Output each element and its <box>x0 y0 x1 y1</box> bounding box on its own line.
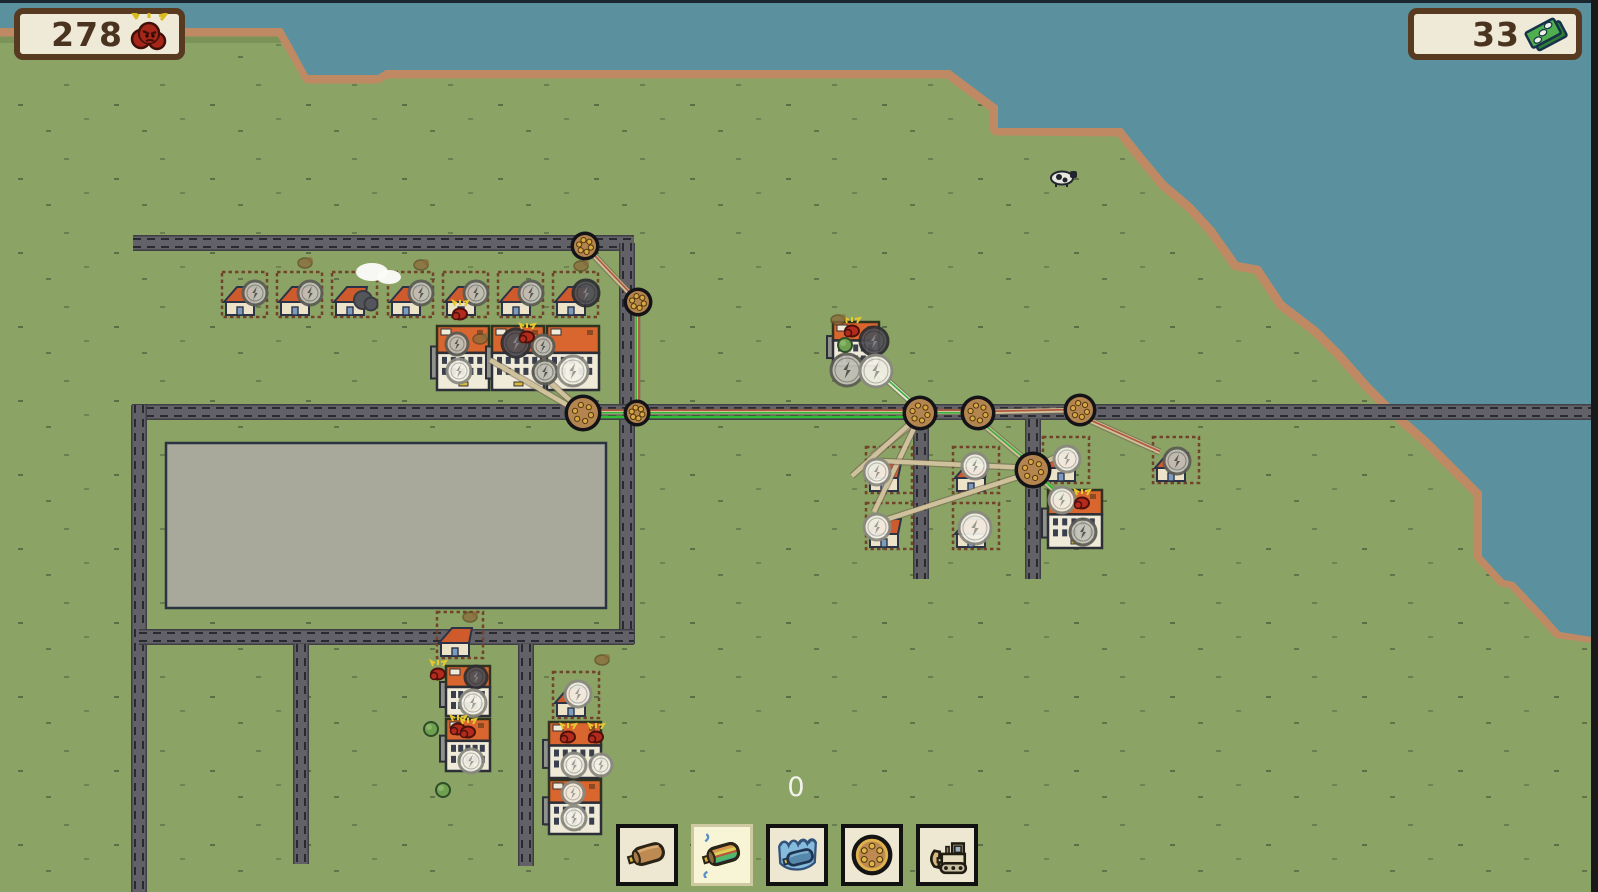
road <box>139 633 634 641</box>
splat <box>574 260 589 271</box>
splat <box>298 257 313 268</box>
road <box>1029 419 1037 579</box>
power-status-icon <box>532 335 554 357</box>
game-viewport: 278 33 0 <box>0 0 1598 892</box>
demand-counter-value: 278 <box>51 18 123 51</box>
power-status-icon <box>558 356 588 386</box>
power-status-icon <box>1054 446 1080 472</box>
underwater-cable-icon <box>774 832 820 878</box>
power-cable[interactable] <box>636 302 639 409</box>
power-status-icon <box>573 280 599 306</box>
utility-pole[interactable] <box>571 232 600 261</box>
power-status-icon <box>864 514 890 540</box>
power-status-icon <box>459 749 483 773</box>
concrete-pad[interactable] <box>166 443 606 608</box>
power-status-icon <box>409 281 433 305</box>
power-status-icon <box>533 360 557 384</box>
bulldozer-icon <box>924 832 970 878</box>
power-status-icon <box>460 690 486 716</box>
utility-pole[interactable] <box>565 395 602 432</box>
cable-icon <box>624 832 670 878</box>
power-status-icon <box>831 354 863 386</box>
utility-pole[interactable] <box>961 396 996 431</box>
map-edge-top <box>0 0 1598 3</box>
splat <box>831 314 846 325</box>
power-status-icon <box>465 666 487 688</box>
power-status-icon <box>562 753 586 777</box>
power-status-icon <box>959 512 991 544</box>
power-status-icon <box>447 359 471 383</box>
tool-multi-cable[interactable] <box>691 824 753 886</box>
power-status-icon <box>446 333 468 355</box>
utility-pole[interactable] <box>624 288 653 317</box>
demand-counter: 278 <box>14 8 185 60</box>
utility-pole[interactable] <box>903 396 938 431</box>
power-status-icon <box>1070 519 1096 545</box>
tool-underwater-cable[interactable] <box>766 824 828 886</box>
splat <box>595 654 610 665</box>
power-status-icon <box>565 681 591 707</box>
power-status-icon <box>562 782 584 804</box>
tree <box>436 783 450 797</box>
splat <box>463 611 478 622</box>
splat <box>414 259 429 270</box>
road <box>297 644 305 864</box>
utility-pole[interactable] <box>1015 452 1052 489</box>
placement-count: 0 <box>768 772 824 803</box>
money-counter: 33 <box>1408 8 1582 60</box>
road <box>917 419 925 579</box>
map-edge-right <box>1591 0 1598 892</box>
utility-pole[interactable] <box>624 400 651 427</box>
road <box>133 239 634 247</box>
power-status-icon <box>590 754 612 776</box>
power-status-icon <box>243 281 267 305</box>
tree <box>424 722 438 736</box>
tool-cable[interactable] <box>616 824 678 886</box>
power-status-icon <box>860 327 888 355</box>
game-map[interactable] <box>0 0 1598 892</box>
splat <box>473 333 488 344</box>
tree <box>838 338 852 352</box>
money-icon <box>1524 14 1570 54</box>
power-status-icon <box>519 281 543 305</box>
power-status-icon <box>1049 487 1075 513</box>
power-status-icon <box>298 281 322 305</box>
utility-pole[interactable] <box>1064 394 1097 427</box>
tool-pole[interactable] <box>841 824 903 886</box>
power-status-icon <box>860 355 892 387</box>
angry-creature-icon <box>127 13 173 55</box>
power-status-icon <box>962 453 988 479</box>
road <box>135 405 143 892</box>
pole-icon <box>849 832 895 878</box>
road <box>522 644 530 866</box>
build-toolbar <box>616 824 978 886</box>
power-status-icon <box>864 459 890 485</box>
money-counter-value: 33 <box>1472 18 1520 51</box>
power-status-icon <box>1164 448 1190 474</box>
power-status-icon <box>562 806 586 830</box>
tool-bulldozer[interactable] <box>916 824 978 886</box>
multi-cable-icon <box>699 832 745 878</box>
